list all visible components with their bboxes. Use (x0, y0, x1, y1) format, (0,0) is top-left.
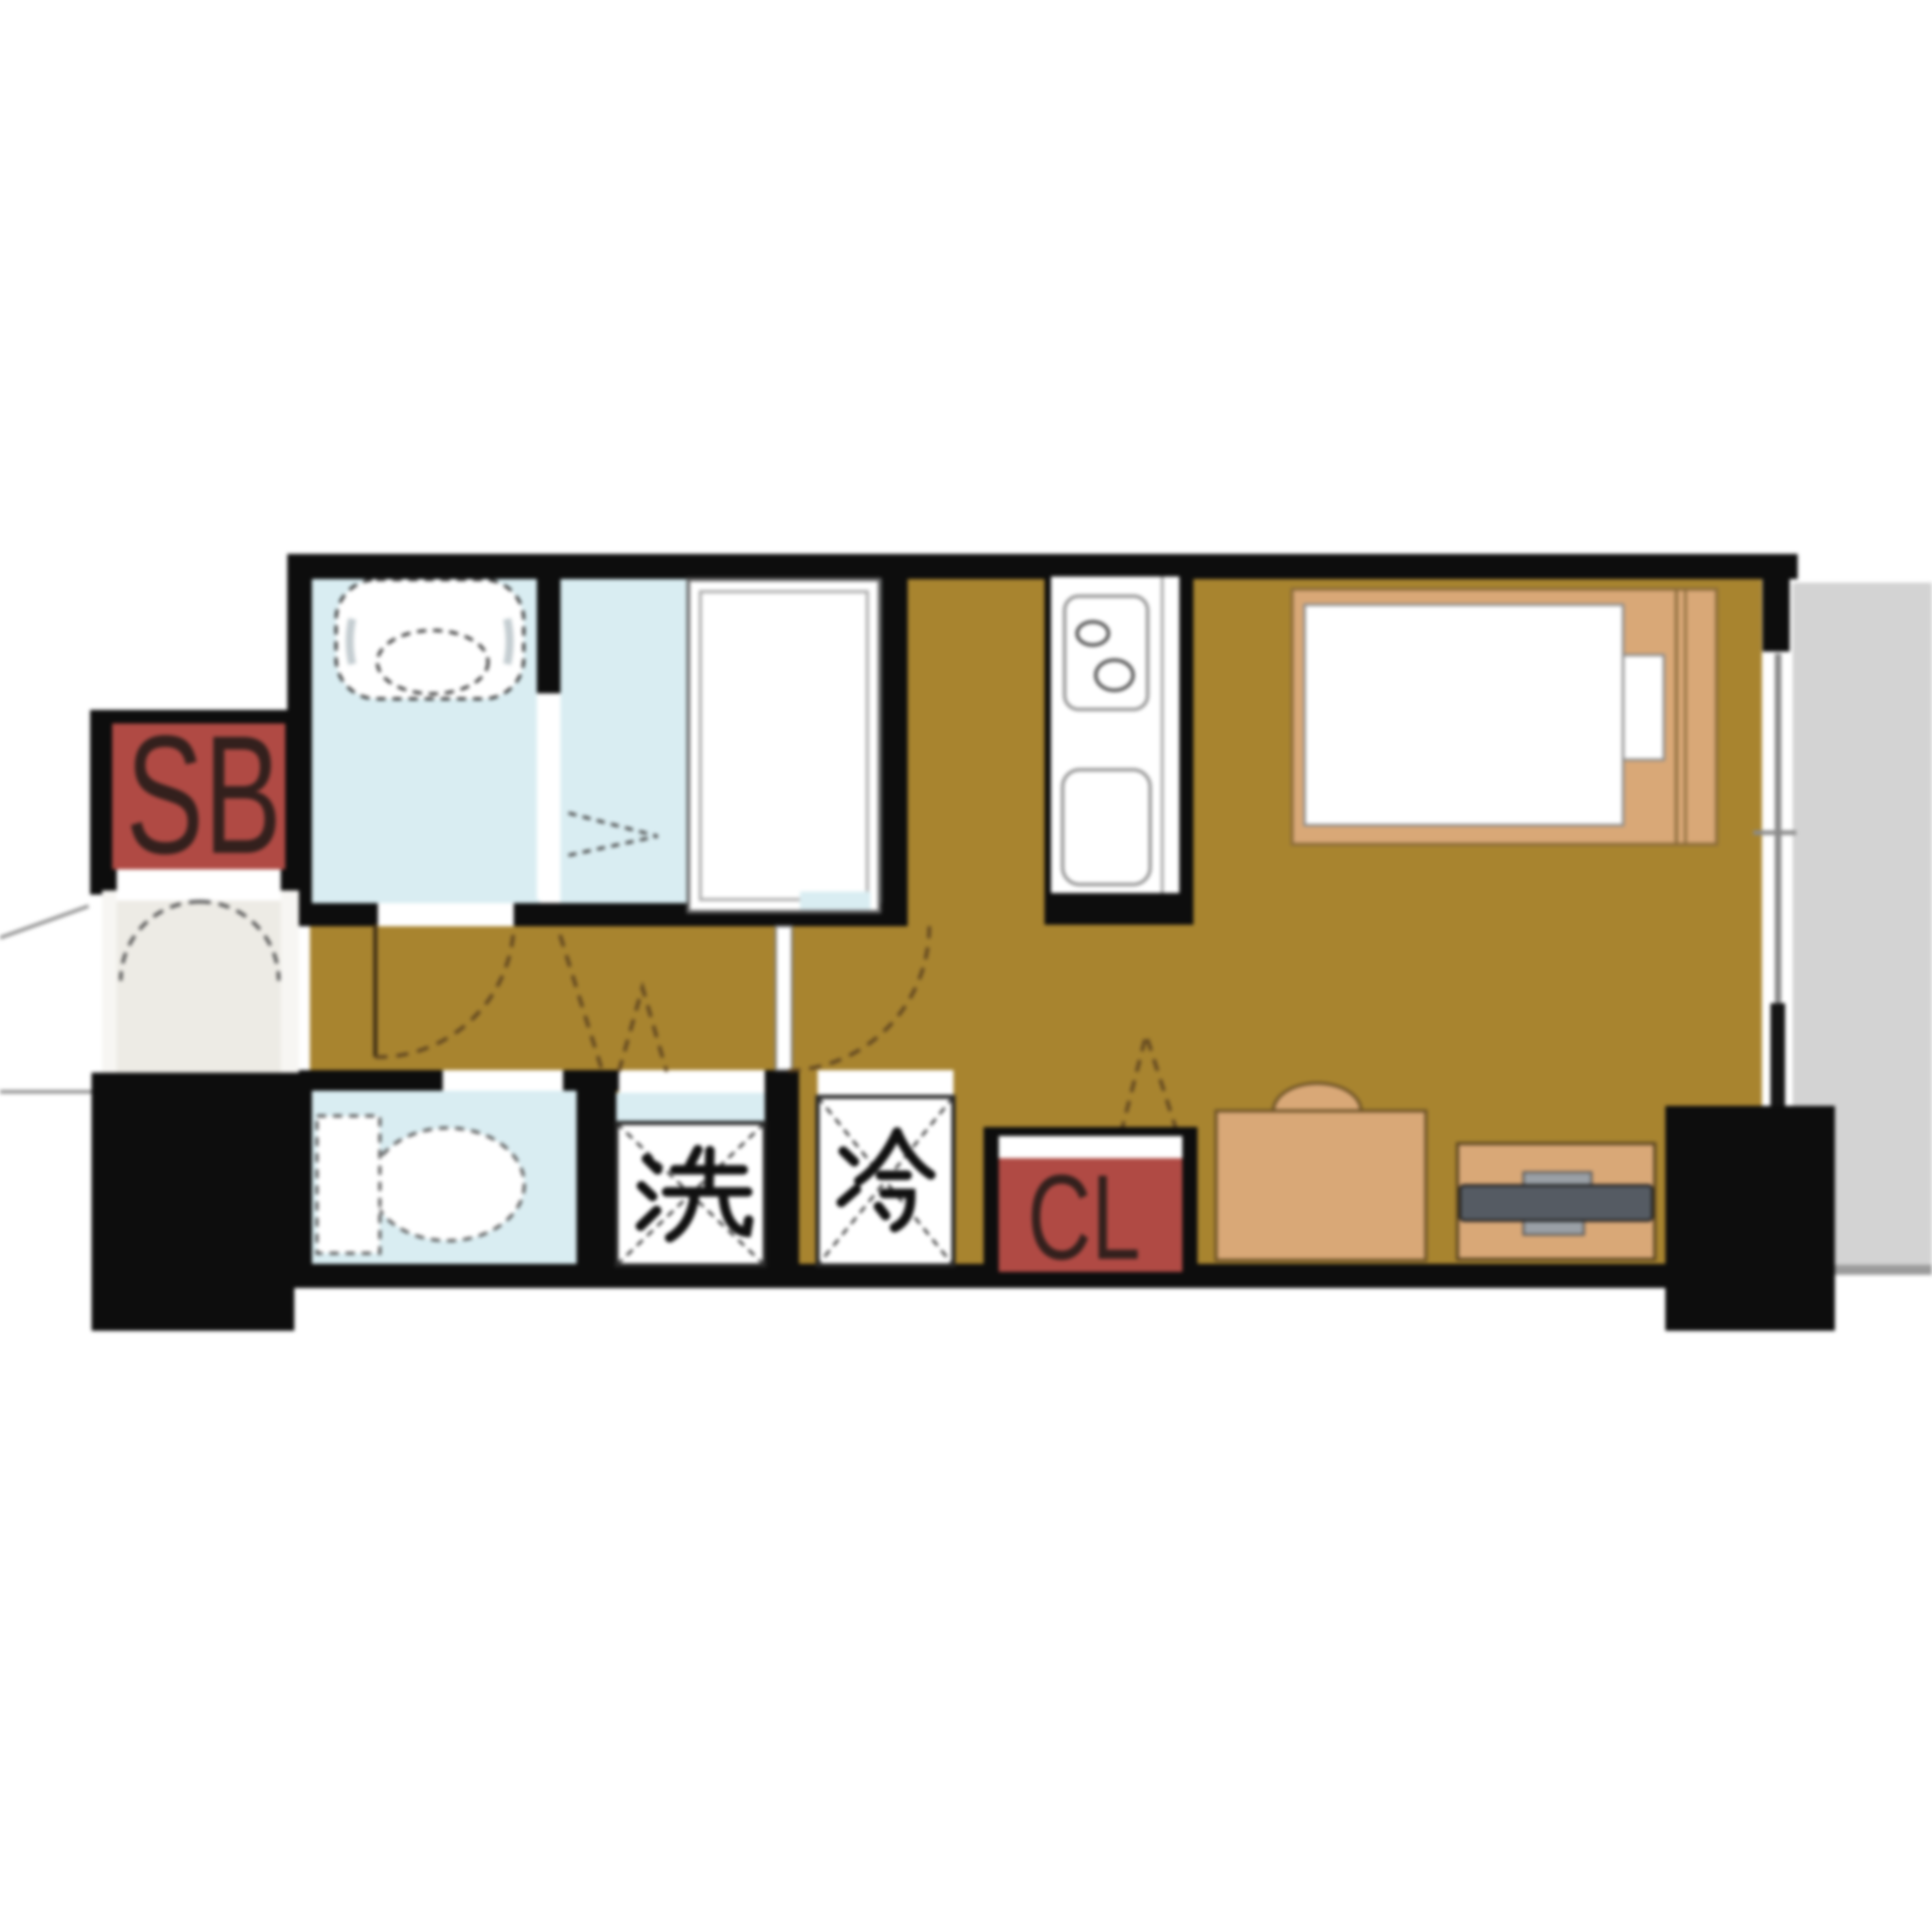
svg-text:SB: SB (126, 700, 282, 889)
svg-text:CL: CL (1027, 1150, 1141, 1284)
